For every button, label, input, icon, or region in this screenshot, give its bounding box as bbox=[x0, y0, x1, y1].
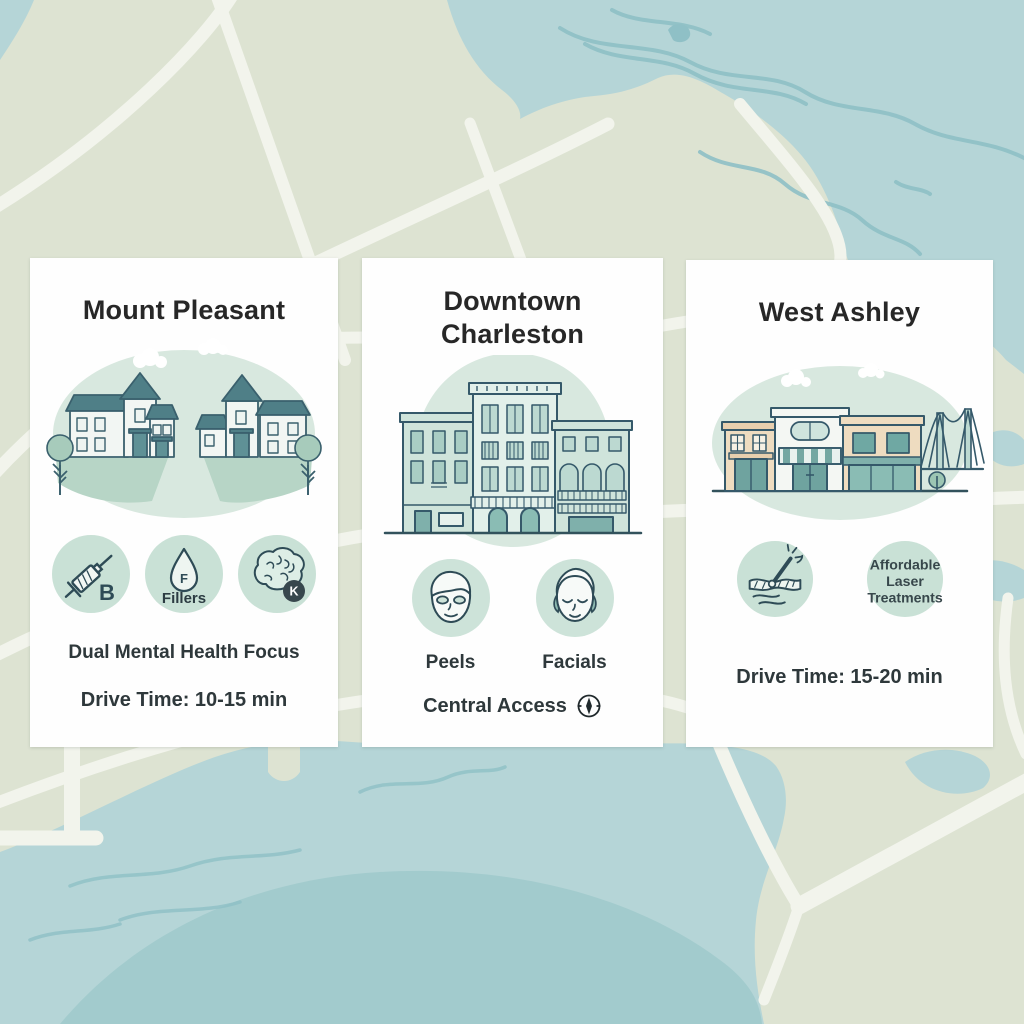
icon-letter: B bbox=[99, 580, 115, 605]
central-access-line: Central Access bbox=[423, 693, 602, 719]
west-ashley-storefronts-illustration bbox=[695, 351, 985, 526]
service-icons-row: Affordable Laser Treatments bbox=[736, 540, 944, 618]
card-title: Downtown Charleston bbox=[441, 285, 584, 351]
neighborhood-card-west-ashley: West Ashley bbox=[686, 260, 993, 747]
card-title-line2: Charleston bbox=[441, 318, 584, 351]
drive-time-text: Drive Time: 15-20 min bbox=[736, 666, 942, 689]
footer-text: Central Access bbox=[423, 695, 567, 718]
peels-icon-group: Peels bbox=[411, 558, 491, 674]
syringe-icon: B bbox=[51, 534, 131, 614]
icon-label: Fillers bbox=[162, 590, 206, 607]
service-icons-row: Peels Facials bbox=[411, 558, 615, 674]
downtown-buildings-illustration bbox=[373, 355, 653, 550]
facial-face-icon bbox=[535, 558, 615, 638]
bubble-line1: Affordable bbox=[869, 556, 940, 572]
peel-mask-face-icon bbox=[411, 558, 491, 638]
card-title-line1: Downtown bbox=[441, 285, 584, 318]
droplet-icon: F Fillers bbox=[144, 534, 224, 614]
bubble-line3: Treatments bbox=[867, 589, 943, 605]
icon-label: Facials bbox=[542, 652, 606, 674]
neighborhood-card-mount-pleasant: Mount Pleasant bbox=[30, 258, 338, 747]
mount-pleasant-houses-illustration bbox=[44, 337, 324, 522]
service-icons-row: B F Fillers K bbox=[51, 534, 317, 614]
card-title: Mount Pleasant bbox=[83, 294, 285, 327]
bubble-line2: Laser bbox=[886, 573, 924, 589]
compass-icon bbox=[576, 693, 602, 719]
drive-time-text: Drive Time: 10-15 min bbox=[81, 689, 287, 712]
neighborhood-card-downtown-charleston: Downtown Charleston bbox=[362, 258, 663, 747]
icon-label: Peels bbox=[426, 652, 476, 674]
laser-skin-icon bbox=[736, 540, 814, 618]
card-title: West Ashley bbox=[759, 296, 920, 329]
icon-letter: F bbox=[180, 571, 188, 586]
feature-text: Dual Mental Health Focus bbox=[68, 642, 299, 664]
brain-icon: K bbox=[237, 534, 317, 614]
facials-icon-group: Facials bbox=[535, 558, 615, 674]
laser-text-bubble: Affordable Laser Treatments bbox=[866, 540, 944, 618]
icon-badge: K bbox=[289, 585, 298, 599]
